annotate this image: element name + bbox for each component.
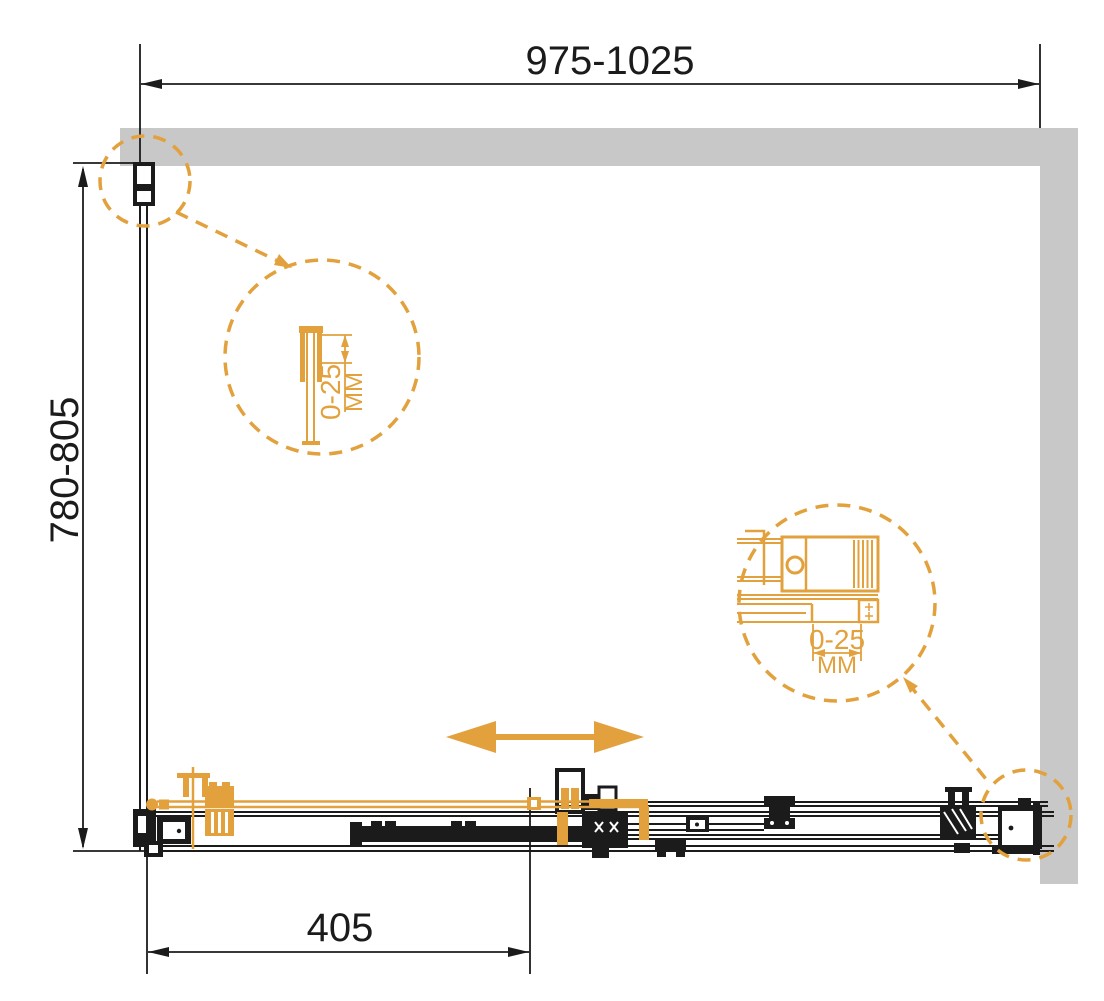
dim-arrow-right xyxy=(1018,79,1039,89)
top-wall xyxy=(120,128,1078,166)
middle-bracket xyxy=(655,839,686,857)
dim-arrow-up xyxy=(78,166,88,187)
dim-arrow-right xyxy=(508,947,529,957)
fixed-side-panel xyxy=(135,164,153,851)
depth-dimension-label: 780-805 xyxy=(43,397,87,544)
detail-leader-line xyxy=(176,212,284,264)
door-track-assembly xyxy=(133,770,1054,858)
dim-arrow-left xyxy=(148,947,169,957)
right-wall xyxy=(1040,128,1078,884)
walls xyxy=(120,128,1078,884)
door-width-label: 405 xyxy=(307,906,374,950)
door-rail-connector xyxy=(527,797,541,810)
dim-arrow-left xyxy=(141,79,162,89)
width-dimension-label: 975-1025 xyxy=(525,39,694,83)
drawing-canvas: 975-1025 780-805 405 xyxy=(0,0,1104,1001)
detail-unit-label: MM xyxy=(817,652,857,679)
detail-leader-line xyxy=(908,683,990,784)
right-roller-carriage xyxy=(940,787,976,853)
door-end-cap xyxy=(146,799,158,811)
dim-arrow-down xyxy=(78,828,88,849)
slide-direction-arrow xyxy=(446,721,644,753)
detail-leader-arrow xyxy=(274,254,292,268)
shower-enclosure-technical-drawing: 975-1025 780-805 405 xyxy=(0,0,1104,1001)
detail-range-label: 0-25 xyxy=(809,624,865,655)
detail-unit-label: MM xyxy=(341,372,368,412)
depth-dimension: 780-805 xyxy=(43,163,152,851)
rail-end-cap xyxy=(686,817,709,832)
